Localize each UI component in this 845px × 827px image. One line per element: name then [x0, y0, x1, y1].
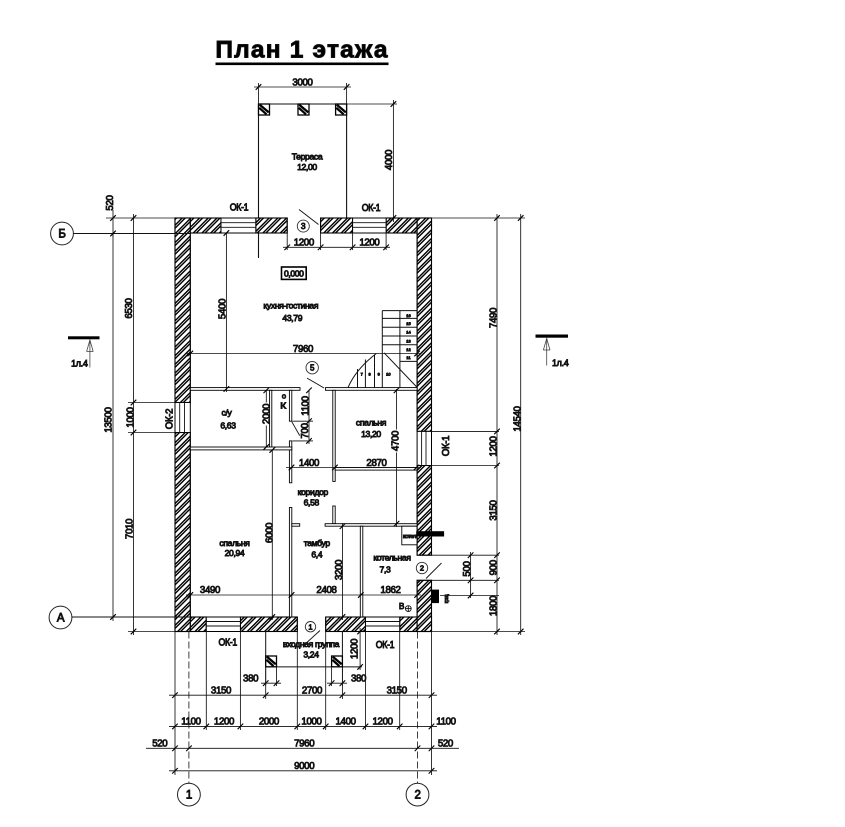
svg-text:1л.4: 1л.4	[71, 359, 88, 369]
svg-text:1200: 1200	[488, 435, 499, 456]
svg-text:коридор: коридор	[298, 487, 329, 497]
svg-text:13500: 13500	[103, 406, 114, 432]
svg-text:380: 380	[243, 673, 259, 684]
svg-text:ОК-1: ОК-1	[362, 203, 381, 214]
svg-text:1400: 1400	[336, 717, 357, 728]
svg-text:6000: 6000	[264, 522, 275, 543]
svg-text:3,24: 3,24	[303, 650, 319, 660]
svg-text:900: 900	[488, 559, 499, 575]
svg-text:В: В	[399, 601, 405, 611]
svg-text:7960: 7960	[294, 739, 315, 750]
svg-text:1: 1	[308, 622, 312, 631]
svg-text:14: 14	[406, 330, 411, 335]
svg-text:кухня-гостиная: кухня-гостиная	[263, 301, 318, 311]
svg-text:1л.4: 1л.4	[552, 358, 569, 368]
svg-text:7010: 7010	[124, 518, 135, 539]
svg-text:2870: 2870	[366, 458, 387, 469]
svg-text:1000: 1000	[125, 406, 136, 427]
svg-text:3150: 3150	[488, 499, 499, 520]
svg-text:5400: 5400	[217, 298, 228, 319]
svg-text:котельная: котельная	[373, 553, 411, 563]
svg-text:12: 12	[406, 347, 411, 352]
svg-text:6,58: 6,58	[304, 498, 320, 508]
svg-text:ОК-1: ОК-1	[441, 436, 452, 456]
svg-text:520: 520	[152, 739, 168, 750]
svg-text:4000: 4000	[384, 149, 395, 170]
svg-text:1100: 1100	[436, 717, 456, 728]
svg-text:тамбур: тамбур	[304, 538, 331, 548]
svg-text:2000: 2000	[259, 717, 280, 728]
svg-text:1400: 1400	[299, 458, 320, 469]
svg-text:12,00: 12,00	[297, 162, 317, 172]
svg-text:ОК-1: ОК-1	[218, 638, 237, 649]
svg-text:2: 2	[414, 790, 420, 802]
svg-text:1200: 1200	[294, 238, 315, 249]
svg-text:3000: 3000	[292, 77, 313, 88]
svg-text:1: 1	[186, 790, 192, 802]
svg-text:2700: 2700	[302, 685, 323, 696]
svg-text:Б: Б	[58, 228, 65, 240]
svg-text:0,000: 0,000	[284, 270, 304, 279]
svg-text:ОК-1: ОК-1	[376, 640, 395, 651]
svg-text:спальня: спальня	[219, 538, 250, 548]
svg-text:700: 700	[300, 422, 311, 438]
svg-text:7490: 7490	[488, 307, 499, 328]
svg-text:20,94: 20,94	[225, 548, 245, 558]
svg-text:2: 2	[420, 564, 424, 573]
svg-text:7960: 7960	[293, 344, 314, 355]
svg-text:14540: 14540	[512, 405, 523, 431]
svg-text:котел: котел	[403, 534, 416, 540]
svg-text:ОК-1: ОК-1	[230, 203, 249, 214]
svg-text:380: 380	[351, 673, 367, 684]
svg-text:13,20: 13,20	[361, 429, 381, 439]
svg-text:План 1 этажа: План 1 этажа	[215, 37, 388, 64]
svg-text:1800: 1800	[488, 595, 499, 616]
svg-text:6,4: 6,4	[311, 550, 322, 560]
svg-text:1000: 1000	[301, 717, 322, 728]
svg-text:3: 3	[301, 221, 306, 231]
svg-text:1100: 1100	[300, 395, 311, 415]
svg-text:1862: 1862	[380, 585, 400, 596]
svg-text:с/у: с/у	[222, 408, 233, 418]
svg-text:о: о	[282, 393, 286, 400]
svg-text:2408: 2408	[316, 585, 336, 596]
svg-text:16: 16	[406, 313, 411, 318]
svg-text:К: К	[280, 401, 286, 411]
svg-text:А: А	[57, 612, 65, 624]
svg-text:6530: 6530	[124, 297, 135, 318]
svg-text:10: 10	[386, 372, 391, 377]
svg-text:3150: 3150	[211, 685, 232, 696]
svg-text:1200: 1200	[373, 717, 394, 728]
svg-text:1200: 1200	[214, 717, 235, 728]
svg-text:520: 520	[105, 194, 116, 210]
svg-text:7,3: 7,3	[380, 565, 391, 575]
svg-text:520: 520	[438, 739, 454, 750]
svg-text:1200: 1200	[359, 238, 380, 249]
svg-text:1100: 1100	[181, 717, 201, 728]
svg-text:6,63: 6,63	[220, 421, 236, 431]
svg-text:3490: 3490	[200, 585, 221, 596]
svg-text:3200: 3200	[334, 559, 345, 580]
svg-text:3150: 3150	[387, 685, 408, 696]
svg-text:9000: 9000	[294, 761, 315, 772]
svg-text:ОК-2: ОК-2	[165, 409, 176, 429]
svg-text:4700: 4700	[391, 430, 402, 451]
svg-text:5: 5	[310, 363, 315, 372]
svg-text:Терраса: Терраса	[292, 152, 323, 162]
svg-text:15: 15	[406, 321, 411, 326]
svg-text:13: 13	[406, 338, 411, 343]
svg-text:2000: 2000	[261, 403, 272, 424]
svg-text:спальня: спальня	[356, 418, 387, 428]
svg-text:43,79: 43,79	[282, 313, 302, 323]
svg-text:входная группа: входная группа	[283, 639, 340, 649]
svg-text:1200: 1200	[350, 638, 361, 659]
svg-text:500: 500	[462, 560, 473, 576]
